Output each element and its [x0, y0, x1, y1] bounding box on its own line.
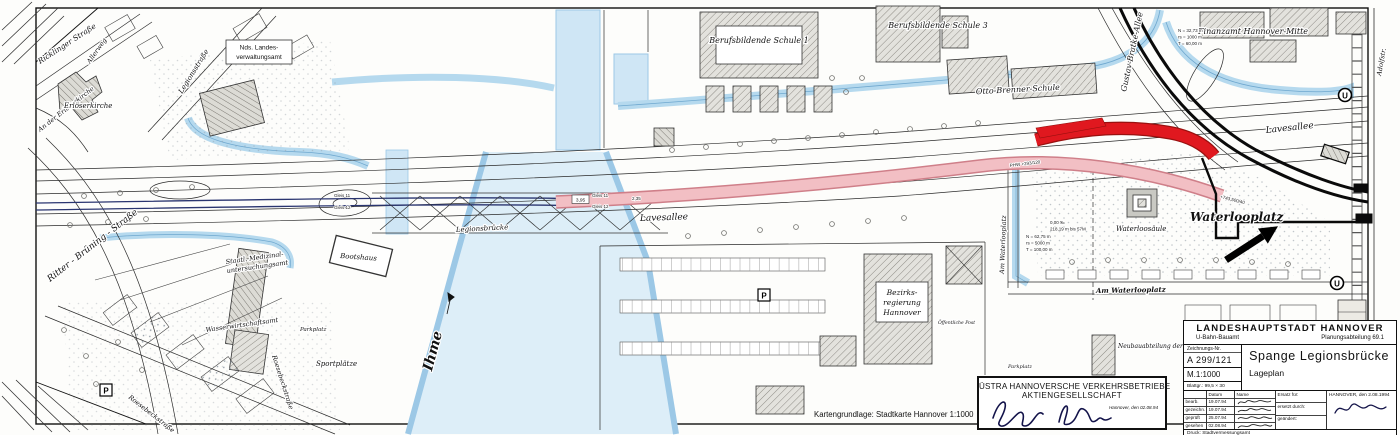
drawing-no: A 299/121: [1184, 353, 1241, 368]
label-finanzamt: Finanzamt Hannover-Mitte: [1197, 27, 1308, 36]
print-note: Druck: Stadtvermessungsamt: [1184, 430, 1396, 435]
p-letter: P: [103, 387, 109, 396]
col-header-name: Name: [1235, 391, 1275, 399]
row-label-blank: [1184, 391, 1206, 399]
u-bahn-station-icon: U: [1331, 277, 1344, 290]
label-bezirksregierung-line2: regierung: [883, 298, 921, 307]
anno-gleis12-e: Gleis 12: [592, 204, 609, 209]
ersetzt-durch-label: ersetzt durch:: [1276, 403, 1326, 415]
authority-name: LANDESHAUPTSTADT HANNOVER: [1188, 323, 1392, 334]
department-name: Planungsabteilung 69.1: [1321, 335, 1384, 341]
row-label-gezeichn: gezeichn.: [1184, 407, 1206, 415]
anno-3-95: 3,95: [576, 198, 586, 204]
label-bezirksregierung-line1: Bezirks-: [886, 288, 918, 297]
label-waterloosaeule: Waterloosäule: [1116, 225, 1166, 233]
label-parkplatz-1: Parkplatz: [299, 327, 326, 333]
signature-small: [1235, 423, 1275, 430]
u-letter: U: [1342, 91, 1348, 100]
anno-rs1000: rs = 1000 m: [1178, 35, 1202, 40]
u-letter: U: [1334, 279, 1340, 288]
office-name: U-Bahn-Bauamt: [1196, 335, 1239, 341]
title-block: LANDESHAUPTSTADT HANNOVER U-Bahn-Bauamt …: [1183, 320, 1397, 435]
anno-t100: T = 100,00 m: [1026, 247, 1053, 252]
label-adolfstrasse: Adolfstr.: [1375, 48, 1388, 78]
col-header-datum: Datum: [1207, 391, 1234, 399]
label-ritter-bruening-strasse: Ritter - Brüning - Straße: [45, 208, 140, 285]
label-nds-line2: verwaltungsamt: [236, 54, 282, 61]
geaendert-label: geändert:: [1276, 416, 1326, 427]
label-allerweg: Allerweg: [85, 36, 109, 65]
signature-large: [1331, 399, 1391, 419]
anno-gleis11-e: Gleis 11: [592, 193, 609, 198]
drawing-meta: Zeichnungs-Nr. A 299/121 M.1:1000 Blattg…: [1184, 345, 1242, 390]
anno-n32: N = 32,73 m: [1178, 28, 1203, 33]
anno-t60: T = 60,00 m: [1178, 41, 1202, 46]
place-date: HANNOVER, den 2.08.1994: [1327, 391, 1396, 398]
label-box-nds-landesverwaltungsamt: Nds. Landes- verwaltungsamt: [226, 40, 292, 64]
sheet-size-label: Blattgr.:: [1187, 384, 1203, 389]
ustra-signatures: [987, 394, 1137, 434]
anno-gleis12-w: Gleis 12: [334, 205, 351, 210]
anno-len218: 218,19 m bis 57M: [1050, 227, 1086, 232]
parking-icon: P: [758, 289, 770, 301]
label-lavesallee-center: Lavesallee: [639, 212, 688, 224]
waterlooplatz-stalls: [1046, 270, 1320, 279]
signature-small: [1235, 407, 1275, 415]
date-gezeichn: 19.07.94: [1207, 407, 1234, 415]
anno-grad0: 0,00 ‰: [1050, 220, 1065, 225]
row-label-gesehen: gesehen: [1184, 423, 1206, 430]
title-block-header: LANDESHAUPTSTADT HANNOVER U-Bahn-Bauamt …: [1184, 321, 1396, 345]
p-letter: P: [761, 292, 767, 301]
date-bearb: 19.07.94: [1207, 399, 1234, 407]
signature-small: [1235, 415, 1275, 423]
label-waterlooplatz: Waterlooplatz: [1190, 210, 1285, 224]
sheet-size-value: 99,5 × 30: [1205, 384, 1225, 389]
u-bahn-station-icon: U: [1339, 89, 1352, 102]
lageplan-scan: U U P P Ricklinger Straße Allerweg An de…: [0, 0, 1400, 435]
scale-value: M.1:1000: [1184, 368, 1241, 382]
ustra-line1: ÜSTRA HANNOVERSCHE VERKEHRSBETRIEBE: [979, 382, 1165, 391]
parking-icon: P: [100, 384, 112, 396]
label-erloeserkirche: Erlöserkirche: [63, 102, 112, 110]
label-am-waterlooplatz-vertical: Am Waterlooplatz: [998, 215, 1008, 275]
label-lavesallee-east: Lavesallee: [1264, 121, 1314, 136]
anno-2-35: 2,35: [632, 196, 641, 201]
label-am-waterlooplatz-bottom: Am Waterlooplatz: [1095, 285, 1167, 295]
anno-gleis11-w: Gleis 11: [334, 193, 351, 198]
anno-n62: N = 62,75 m: [1026, 234, 1051, 239]
label-oeffentliche-post: Öffentliche Post: [938, 319, 975, 326]
ersatz-fuer-label: Ersatz für:: [1276, 391, 1326, 403]
row-label-bearb: bearb.: [1184, 399, 1206, 407]
drawing-no-label: Zeichnungs-Nr.: [1184, 345, 1241, 353]
spange-red-section: [1036, 118, 1214, 156]
label-sportplaetze: Sportplätze: [316, 360, 357, 368]
project-title: Spange Legionsbrücke: [1249, 349, 1389, 363]
map-source-note: Kartengrundlage: Stadtkarte Hannover 1:1…: [811, 410, 977, 419]
date-geprueft: 25.07.94: [1207, 415, 1234, 423]
row-label-geprueft: geprüft: [1184, 415, 1206, 423]
label-parkplatz-2: Parkplatz: [1007, 364, 1032, 370]
label-nds-line1: Nds. Landes-: [240, 45, 279, 52]
ustra-stamp-box: ÜSTRA HANNOVERSCHE VERKEHRSBETRIEBE AKTI…: [977, 376, 1167, 430]
label-berufsbildende-schule-1: Berufsbildende Schule 1: [708, 36, 809, 45]
label-berufsbildende-schule-3: Berufsbildende Schule 3: [887, 21, 988, 30]
label-bezirksregierung-line3: Hannover: [882, 308, 921, 317]
signature-small: [1235, 399, 1275, 407]
plan-type: Lageplan: [1249, 368, 1389, 378]
date-gesehen: 02.08.94: [1207, 423, 1234, 430]
approval-table: bearb. gezeichn. geprüft gesehen Datum 1…: [1184, 391, 1396, 430]
anno-rs5000: rs = 5000 m: [1026, 241, 1050, 246]
